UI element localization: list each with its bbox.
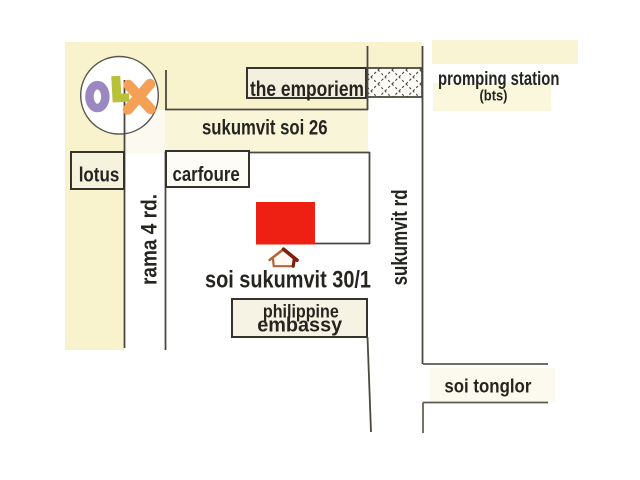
svg-text:soi sukumvit 30/1: soi sukumvit 30/1 (205, 267, 371, 294)
svg-text:lotus: lotus (79, 164, 120, 186)
svg-text:soi tonglor: soi tonglor (444, 376, 531, 398)
svg-text:rama 4 rd.: rama 4 rd. (137, 194, 162, 285)
svg-text:promping station: promping station (438, 69, 559, 90)
svg-text:embassy: embassy (257, 314, 343, 337)
svg-text:sukumvit soi 26: sukumvit soi 26 (202, 117, 328, 140)
svg-text:(bts): (bts) (480, 89, 508, 105)
svg-text:the emporiem: the emporiem (250, 78, 364, 101)
svg-text:carfoure: carfoure (173, 164, 240, 186)
svg-text:sukumvit rd: sukumvit rd (387, 189, 412, 285)
